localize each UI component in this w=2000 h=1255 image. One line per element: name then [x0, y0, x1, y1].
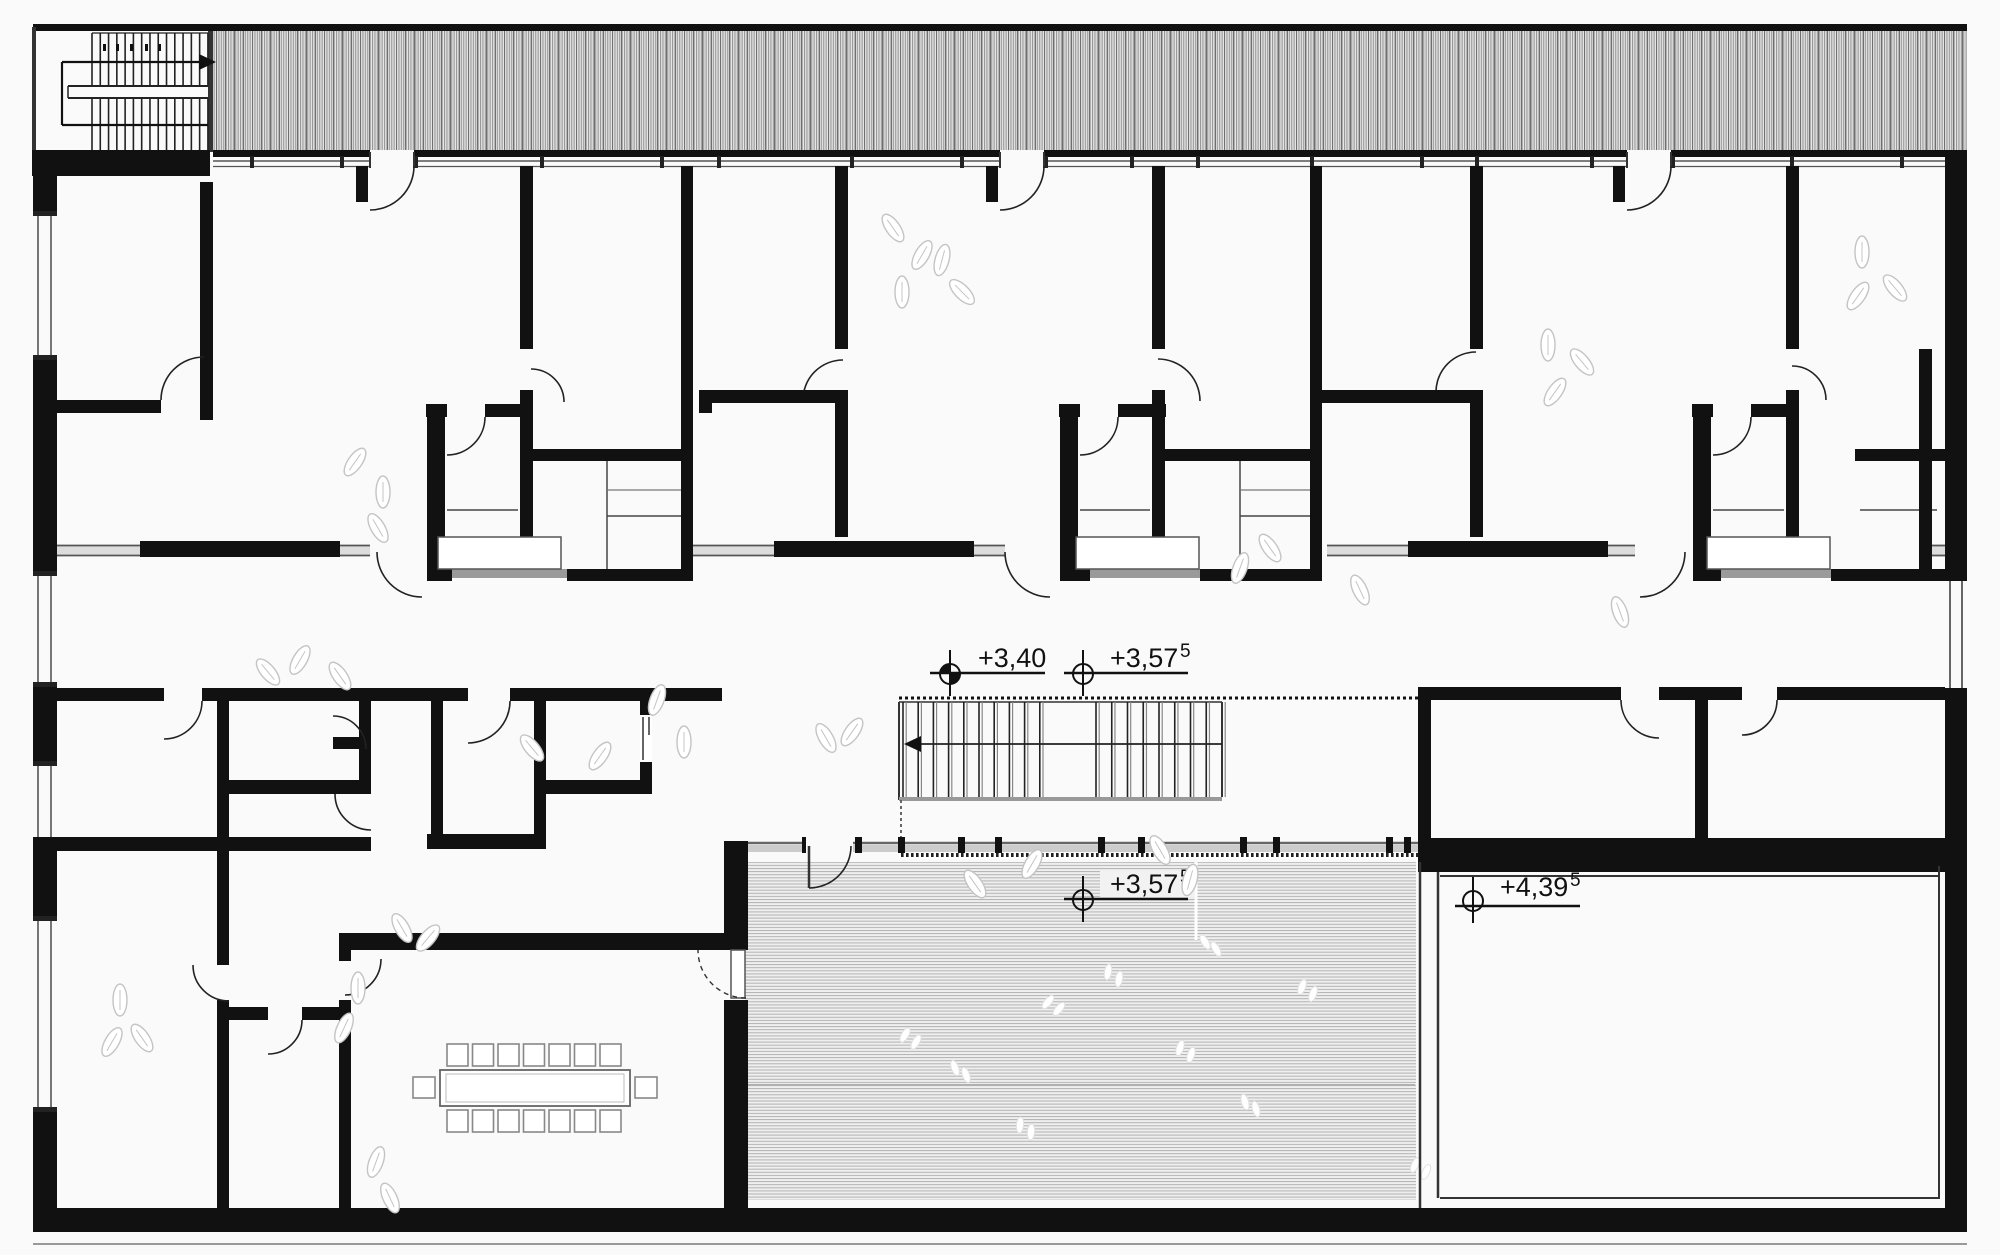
svg-text:+3,57: +3,57 — [1110, 643, 1178, 673]
svg-text:+3,57: +3,57 — [1110, 869, 1178, 899]
svg-text:+3,40: +3,40 — [978, 643, 1046, 673]
svg-text:5: 5 — [1570, 870, 1581, 891]
svg-text:5: 5 — [1180, 641, 1191, 662]
svg-text:+4,39: +4,39 — [1500, 872, 1568, 902]
